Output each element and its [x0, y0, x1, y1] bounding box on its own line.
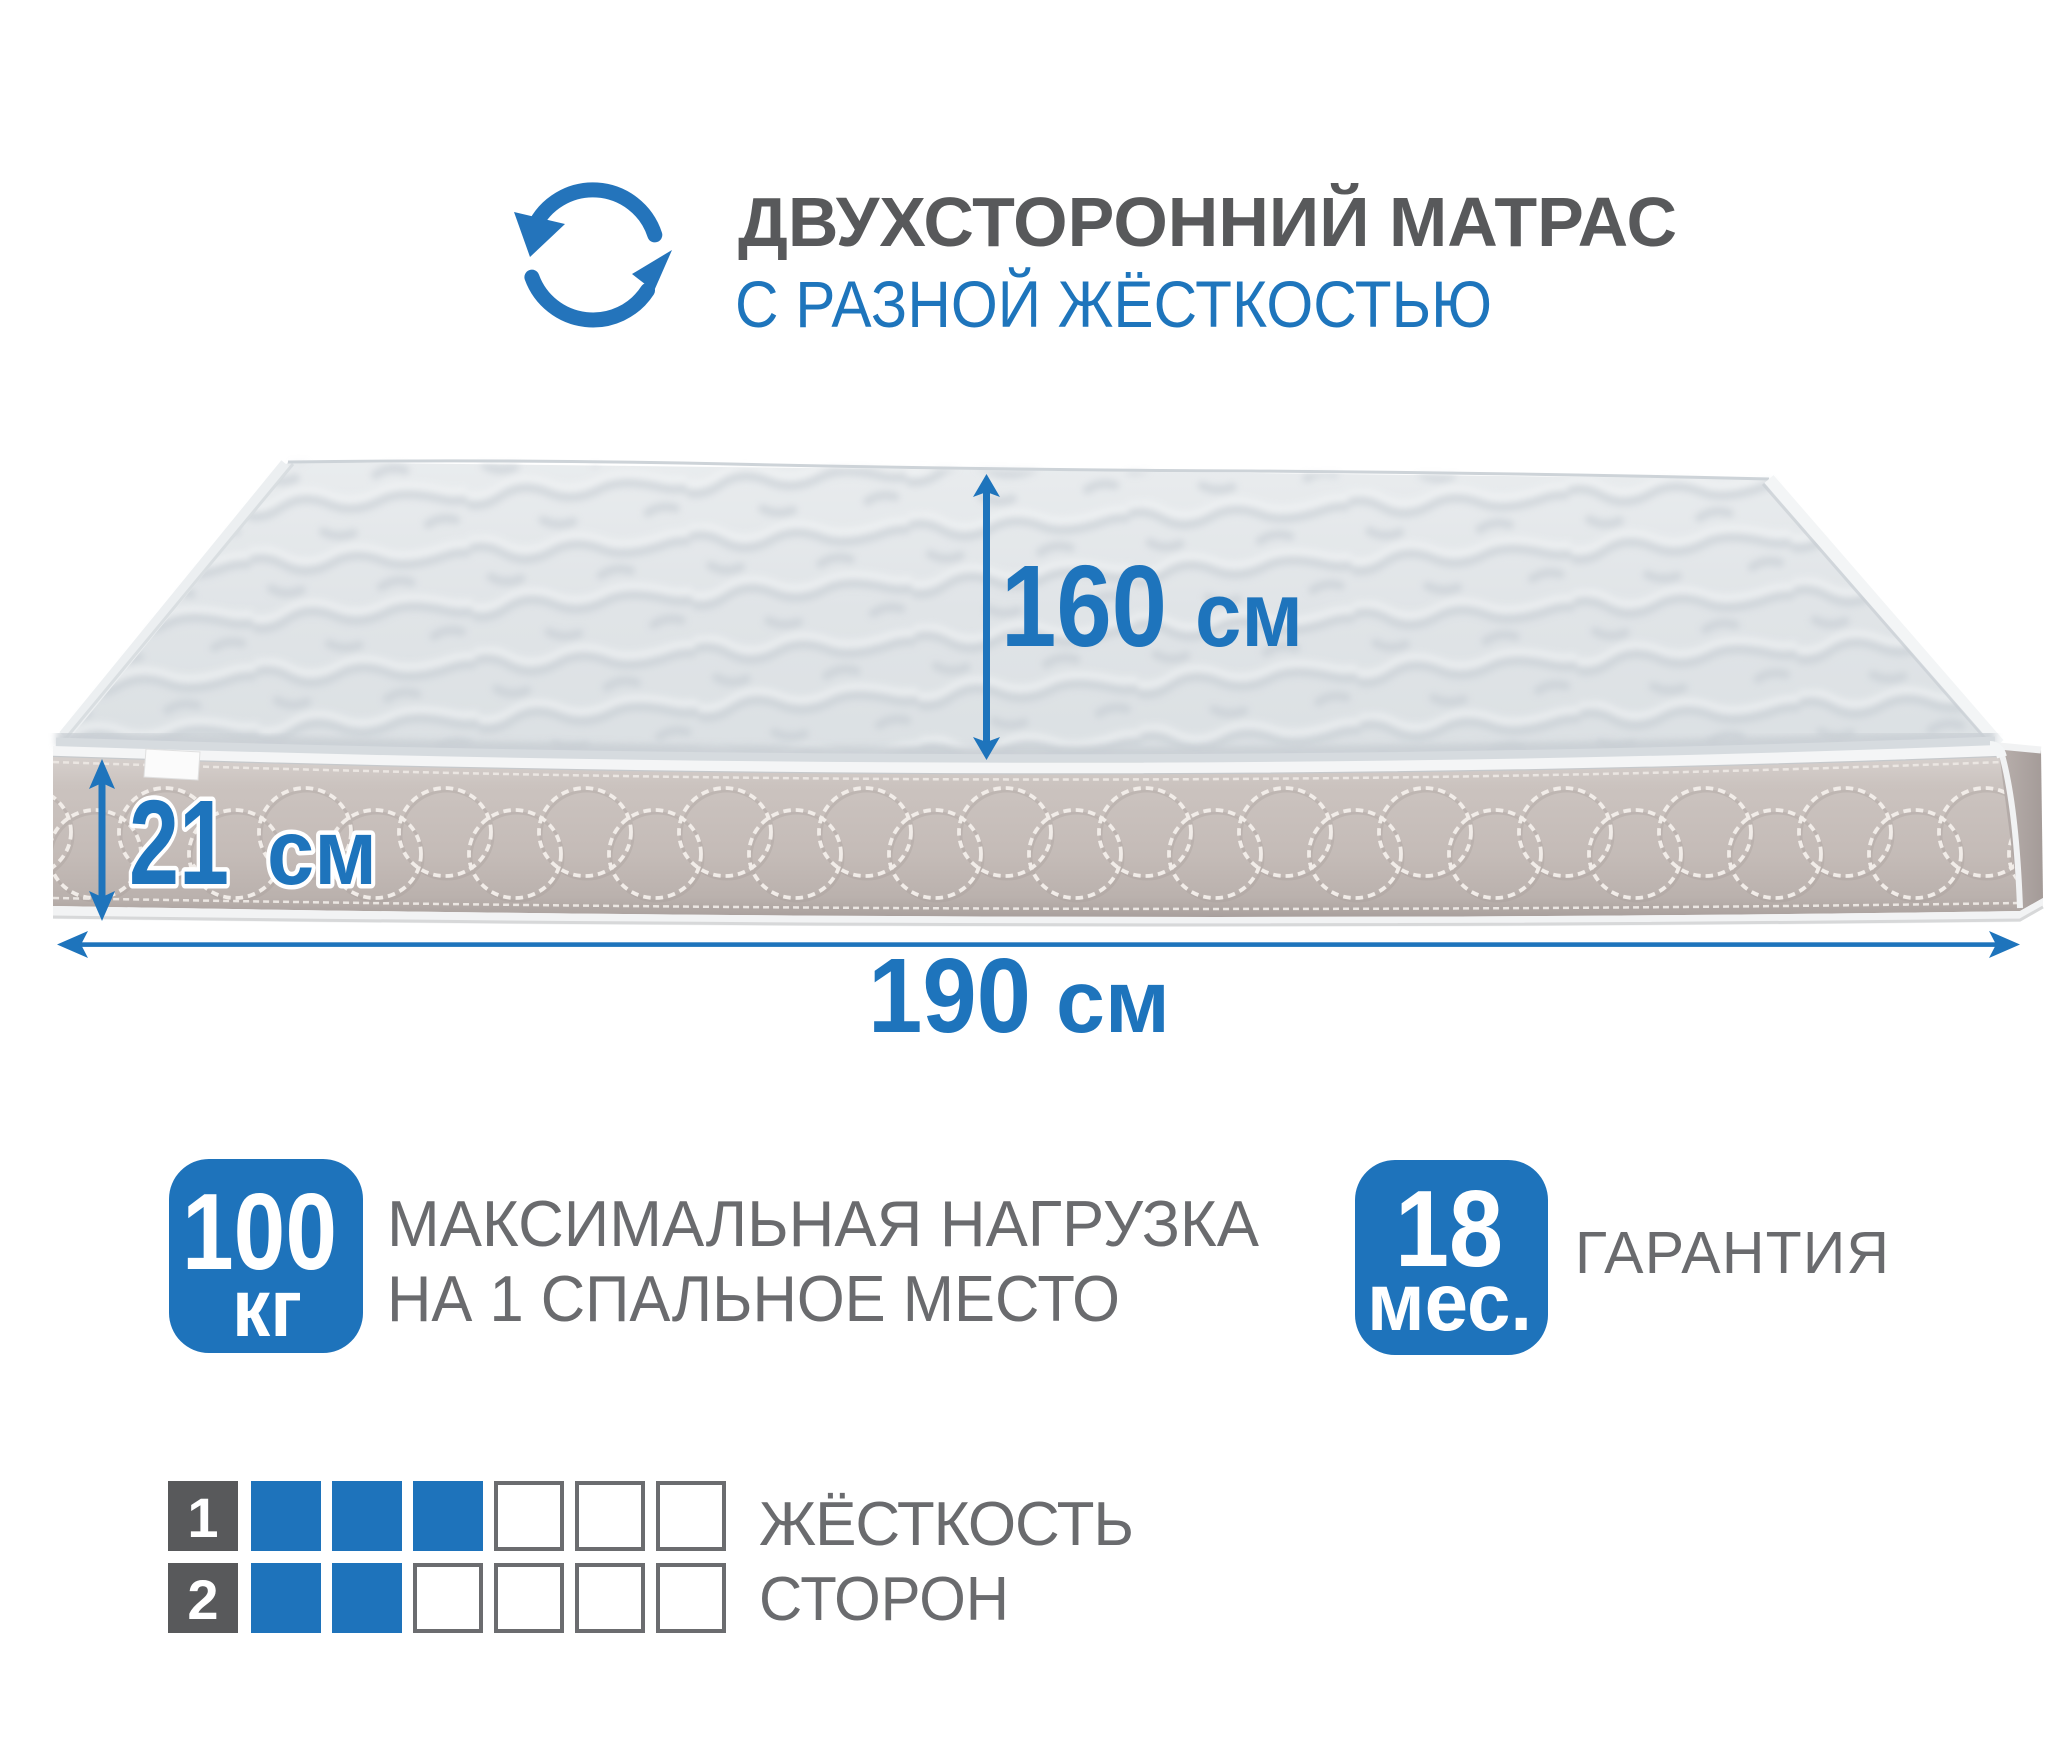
svg-text:кг: кг: [232, 1263, 302, 1354]
svg-text:ДВУХСТОРОННИЙ МАТРАС: ДВУХСТОРОННИЙ МАТРАС: [738, 182, 1677, 261]
svg-text:ГАРАНТИЯ: ГАРАНТИЯ: [1575, 1220, 1889, 1286]
svg-text:см: см: [267, 800, 377, 904]
svg-text:мес.: мес.: [1367, 1257, 1532, 1348]
svg-text:160: 160: [1001, 541, 1167, 671]
svg-text:2: 2: [187, 1568, 218, 1631]
svg-text:см: см: [1195, 564, 1303, 666]
svg-text:НА 1 СПАЛЬНОЕ МЕСТО: НА 1 СПАЛЬНОЕ МЕСТО: [387, 1262, 1120, 1335]
svg-text:МАКСИМАЛЬНАЯ НАГРУЗКА: МАКСИМАЛЬНАЯ НАГРУЗКА: [387, 1187, 1260, 1260]
svg-text:190: 190: [868, 937, 1031, 1055]
svg-text:21: 21: [129, 774, 229, 910]
svg-text:см: см: [1056, 951, 1170, 1051]
svg-text:ЖЁСТКОСТЬ: ЖЁСТКОСТЬ: [759, 1490, 1134, 1559]
svg-text:1: 1: [187, 1486, 218, 1549]
svg-text:СТОРОН: СТОРОН: [759, 1565, 1009, 1634]
svg-text:С РАЗНОЙ ЖЁСТКОСТЬЮ: С РАЗНОЙ ЖЁСТКОСТЬЮ: [735, 266, 1492, 341]
